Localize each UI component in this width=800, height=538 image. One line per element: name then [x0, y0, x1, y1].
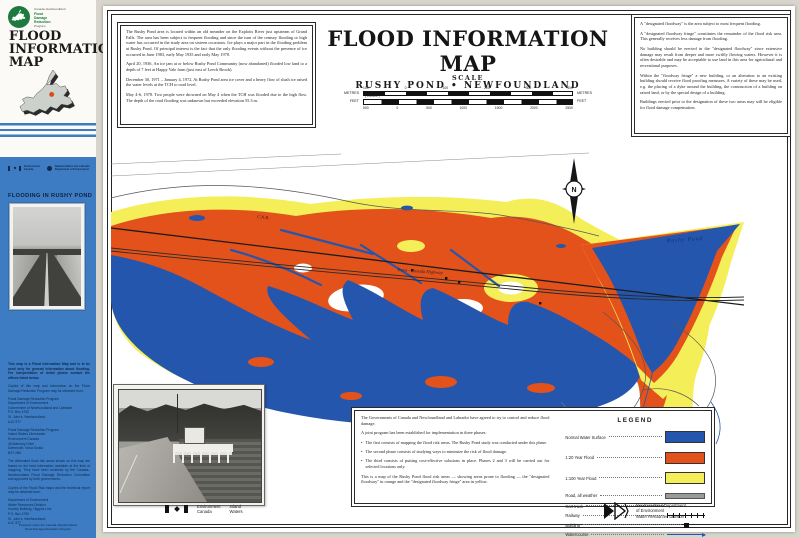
legend-label: Building — [565, 523, 580, 528]
bullet-text: The first consists of mapping the flood … — [366, 440, 548, 446]
map-sheet: Rushy Pond C.N.R. Trans - Canada Highway… — [103, 6, 795, 532]
newfoundland-gov-icon — [47, 166, 52, 171]
feet-bar — [363, 99, 573, 104]
environment-canada-signature: Environment Canada — [24, 165, 40, 171]
program-paragraph: The Governments of Canada and Newfoundla… — [361, 415, 549, 427]
sidebar: Canada–Newfoundland Flood Damage Reducti… — [0, 0, 96, 538]
program-description: The Governments of Canada and Newfoundla… — [361, 415, 549, 538]
legend-item: Building — [565, 523, 705, 528]
newfoundland-dept-footer: Newfoundland Department of Environment W… — [603, 502, 686, 520]
definition-paragraph: Within the "floodway fringe" a new build… — [640, 73, 782, 96]
bullet-marker: • — [361, 458, 363, 470]
tick-label: 0 — [396, 106, 398, 110]
signature-line: Department of Environment — [55, 168, 90, 171]
flood-information-map-page: Canada–Newfoundland Flood Damage Reducti… — [0, 0, 800, 538]
small-pond — [556, 244, 566, 248]
sidebar-paragraph: Copies of the Flood Risk maps and the te… — [8, 486, 90, 495]
feet-scale-bar: FEET ( 1:4,800 ) 500 0 500 1000 1500 200… — [318, 99, 618, 109]
fringe-swatch — [665, 472, 705, 484]
water-resources-division-icon — [603, 502, 629, 520]
dotted-leader — [599, 477, 662, 478]
building-marker — [458, 281, 460, 283]
small-pond — [189, 215, 205, 221]
sidebar-paragraph: The delineated flood risk areas shown on… — [8, 459, 90, 482]
legend-item: Road, all weather — [565, 493, 705, 500]
program-bullet: •The first consists of mapping the flood… — [361, 440, 549, 446]
legend-label: Watercourse — [565, 532, 588, 537]
dotted-leader — [609, 436, 662, 437]
sidebar-caption: Prepared under the Canada–Newfoundland F… — [0, 523, 96, 531]
scale-unit: METRES — [344, 91, 359, 96]
building-marker — [445, 277, 447, 279]
scale-unit: FEET — [577, 99, 586, 104]
tick-label: 300 — [526, 86, 532, 90]
survey-line — [111, 153, 589, 176]
scale-heading: SCALE — [318, 74, 618, 82]
tick-label: 2000 — [530, 106, 538, 110]
water-swatch — [665, 431, 705, 443]
photo-guardrail — [173, 444, 233, 452]
bullet-text: The second phase consists of studying wa… — [366, 449, 508, 455]
flood-history-box: The Rushy Pond area is located within an… — [117, 22, 316, 128]
building-symbol — [684, 523, 689, 528]
definition-paragraph: A "designated floodway fringe" constitut… — [640, 31, 782, 42]
program-logo-row: Canada–Newfoundland Flood Damage Reducti… — [8, 6, 65, 28]
legend-item: Normal Water Surface — [565, 431, 705, 443]
legend-item: Watercourse — [565, 532, 705, 537]
photo-pole — [177, 394, 178, 432]
wordmark-line: Waters — [230, 509, 243, 514]
program-bullet: •The third consists of putting cost-effe… — [361, 458, 549, 470]
scale-unit: FEET — [350, 99, 359, 104]
inland-waters-wordmark: Inland Waters — [230, 504, 243, 515]
canada-flag-icon — [8, 166, 21, 171]
program-name: Canada–Newfoundland Flood Damage Reducti… — [34, 6, 65, 28]
legend-item: 1:100 Year Flood — [565, 472, 705, 484]
flooded-road-photo — [9, 203, 85, 310]
tick-label: 1500 — [495, 106, 503, 110]
program-paragraph: This is a map of the Rushy Pond flood ri… — [361, 474, 549, 486]
canada-flag-icon — [165, 505, 188, 513]
photo-image — [118, 389, 262, 503]
environment-canada-footer: Environment Canada Inland Waters — [165, 504, 243, 515]
dry-island — [294, 264, 312, 273]
photo-building — [184, 427, 204, 444]
floodway-definitions-box: A "designated floodway" is the area subj… — [631, 14, 791, 137]
program-name-line: Canada–Newfoundland — [34, 7, 65, 11]
tick-label: 500 — [426, 106, 432, 110]
history-paragraph: The Rushy Pond area is located within an… — [126, 29, 307, 57]
program-name-line: Program — [34, 24, 46, 28]
wordmark-line: Canada — [197, 509, 221, 514]
tick-label: 0 — [405, 86, 407, 90]
program-and-legend-box: The Governments of Canada and Newfoundla… — [351, 407, 715, 507]
sidebar-address: Flood Damage Reduction Program Inland Wa… — [8, 428, 90, 456]
government-signatures: Environment Canada Newfoundland and Labr… — [8, 165, 92, 171]
fdr-program-logo-icon — [8, 6, 30, 28]
bullet-marker: • — [361, 449, 363, 455]
tick-label: 100 — [363, 86, 369, 90]
tick-label: 500 — [363, 106, 369, 110]
legend-label: Cart track — [565, 504, 583, 509]
dotted-leader — [600, 495, 662, 496]
legend-label: Road, all weather — [565, 493, 597, 498]
road-symbol — [665, 493, 705, 500]
metres-scale-bar: METRES 100 0 100 200 300 400 METRES — [318, 86, 618, 96]
newfoundland-dept-wordmark: Newfoundland Department of Environment W… — [636, 503, 686, 519]
floodway-swatch — [665, 452, 705, 464]
legend-item: 1:20 Year Flood — [565, 452, 705, 464]
sidebar-paragraph: Copies of this map and information on th… — [8, 384, 90, 393]
sidebar-paragraph: This map is a Flood Information Map and … — [8, 362, 90, 380]
sidebar-body: Environment Canada Newfoundland and Labr… — [0, 157, 96, 538]
feet-ticks: 500 0 500 1000 1500 2000 2500 — [363, 106, 573, 110]
tick-label: 400 — [567, 86, 573, 90]
tick-label: 1000 — [459, 106, 467, 110]
legend-label: Normal Water Surface — [565, 435, 605, 440]
floodway-island — [425, 376, 457, 388]
wordmark-line: Water Resources Division — [636, 514, 686, 519]
divider-stripes — [0, 123, 96, 140]
caption-line: Flood Damage Reduction Program — [0, 527, 96, 531]
definition-paragraph: No building should be erected in the "de… — [640, 46, 782, 69]
watercourse-symbol — [667, 534, 705, 535]
dotted-leader — [591, 534, 664, 535]
flooding-section-heading: FLOODING IN RUSHY POND — [8, 193, 92, 199]
signature-line: Canada — [24, 168, 40, 171]
photo-sky — [119, 390, 261, 408]
environment-canada-wordmark: Environment Canada — [197, 504, 221, 515]
photo-guardrail-posts — [173, 452, 233, 463]
floodway-island — [248, 357, 274, 367]
program-bullet: •The second phase consists of studying w… — [361, 449, 549, 455]
fringe-island — [397, 240, 425, 252]
dotted-leader — [583, 524, 681, 525]
history-paragraph: May 4-6, 1978. Two people were drowned o… — [126, 92, 307, 103]
legend-title: LEGEND — [565, 417, 705, 424]
sidebar-information-text: This map is a Flood Information Map and … — [8, 362, 90, 529]
sidebar-address: Flood Damage Reduction Program Departmen… — [8, 397, 90, 425]
history-paragraph: April 20, 1936. An ice jam at or below R… — [126, 61, 307, 72]
tick-label: 200 — [484, 86, 490, 90]
definition-paragraph: Buildings erected prior to the designati… — [640, 99, 782, 110]
floodway-island — [527, 383, 555, 393]
survey-line — [111, 154, 341, 164]
tick-label: 2500 — [565, 106, 573, 110]
definition-paragraph: A "designated floodway" is the area subj… — [640, 21, 782, 27]
sidebar-header: Canada–Newfoundland Flood Damage Reducti… — [0, 0, 96, 140]
building-marker — [539, 302, 541, 304]
flooded-highway-photo — [113, 384, 265, 506]
scale-unit: METRES — [577, 91, 592, 96]
photo-image — [13, 207, 81, 306]
scale-ratio-label: ( 1:4,800 ) — [365, 94, 380, 98]
history-paragraph: December 30, 1971 – January 4, 1972. At … — [126, 77, 307, 88]
north-letter: N — [571, 187, 576, 194]
metres-ticks: 100 0 100 200 300 400 — [363, 86, 573, 90]
program-paragraph: A joint program has been established for… — [361, 430, 549, 436]
metres-bar — [363, 91, 573, 96]
legend-label: Railway — [565, 513, 579, 518]
rushy-pond-location-marker — [49, 92, 54, 97]
scale-block: SCALE METRES 100 0 100 200 300 400 METRE… — [318, 74, 618, 110]
floodway-island — [340, 392, 362, 400]
sheet-title: FLOOD INFORMATION MAP — [318, 26, 618, 76]
tick-label: 100 — [442, 86, 448, 90]
newfoundland-signature: Newfoundland and Labrador Department of … — [55, 165, 90, 171]
newfoundland-locator-map — [6, 70, 90, 128]
dotted-leader — [597, 457, 662, 458]
legend-label: 1:100 Year Flood — [565, 476, 596, 481]
legend-label: 1:20 Year Flood — [565, 455, 594, 460]
bullet-text: The third consists of putting cost-effec… — [366, 458, 550, 470]
bullet-marker: • — [361, 440, 363, 446]
